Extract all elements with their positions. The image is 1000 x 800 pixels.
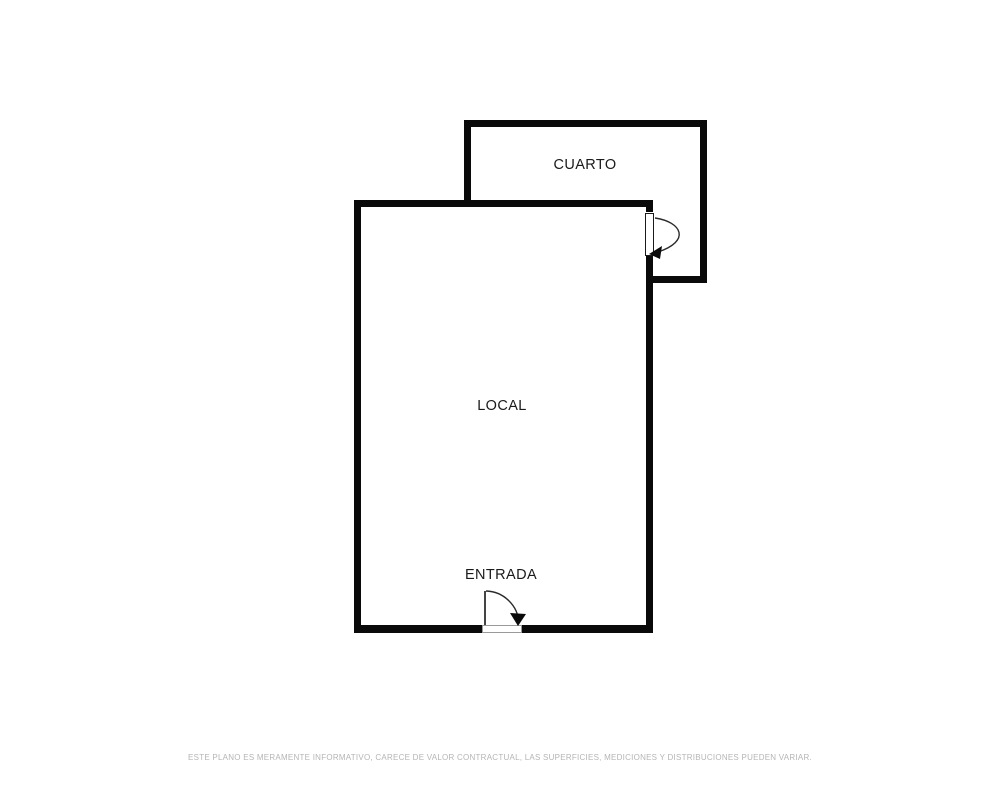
cuarto-room-label: CUARTO (553, 157, 616, 173)
entrada-label: ENTRADA (465, 567, 537, 583)
local-room-label: LOCAL (477, 398, 527, 414)
local-right-wall-upper (646, 200, 653, 212)
cuarto-right-wall (700, 120, 707, 283)
local-right-wall-lower (646, 256, 653, 633)
cuarto-left-wall (464, 120, 471, 207)
cuarto-top-wall (464, 120, 707, 127)
cuarto-bottom-wall (646, 276, 707, 283)
disclaimer-text: ESTE PLANO ES MERAMENTE INFORMATIVO, CAR… (0, 753, 1000, 762)
entrada-door-threshold (482, 625, 522, 633)
entrada-door-swing-icon (485, 591, 526, 626)
local-bottom-wall-left (354, 625, 483, 633)
floor-plan: CUARTO LOCAL ENTRADA ESTE PLANO ES MERAM… (0, 0, 1000, 800)
cuarto-door-leaf (645, 213, 654, 256)
local-left-wall (354, 200, 361, 633)
local-bottom-wall-right (521, 625, 653, 633)
local-top-wall (354, 200, 653, 207)
